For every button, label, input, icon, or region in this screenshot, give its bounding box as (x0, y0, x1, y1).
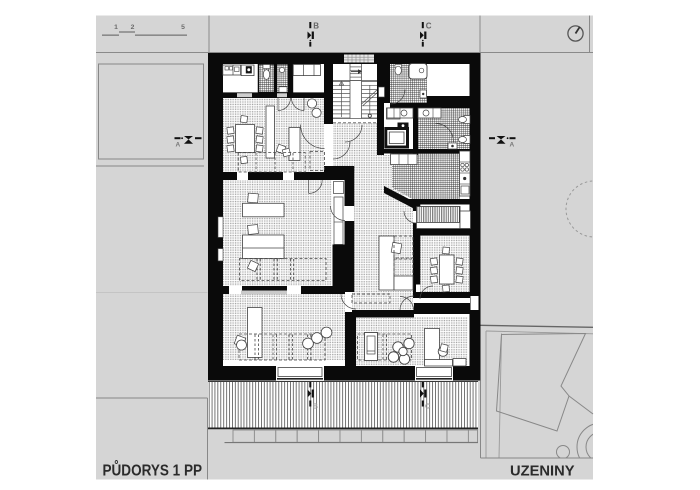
svg-text:5: 5 (181, 24, 185, 31)
svg-text:C: C (425, 402, 431, 411)
svg-text:B: B (313, 22, 319, 31)
svg-text:PŮDORYS 1 PP: PŮDORYS 1 PP (103, 461, 203, 480)
svg-text:A: A (176, 142, 181, 149)
svg-text:A: A (510, 142, 515, 149)
svg-text:2: 2 (131, 24, 135, 31)
svg-text:UZENINY: UZENINY (510, 463, 575, 480)
svg-text:C: C (426, 22, 432, 31)
svg-text:B: B (313, 402, 319, 411)
svg-text:1: 1 (114, 24, 118, 31)
